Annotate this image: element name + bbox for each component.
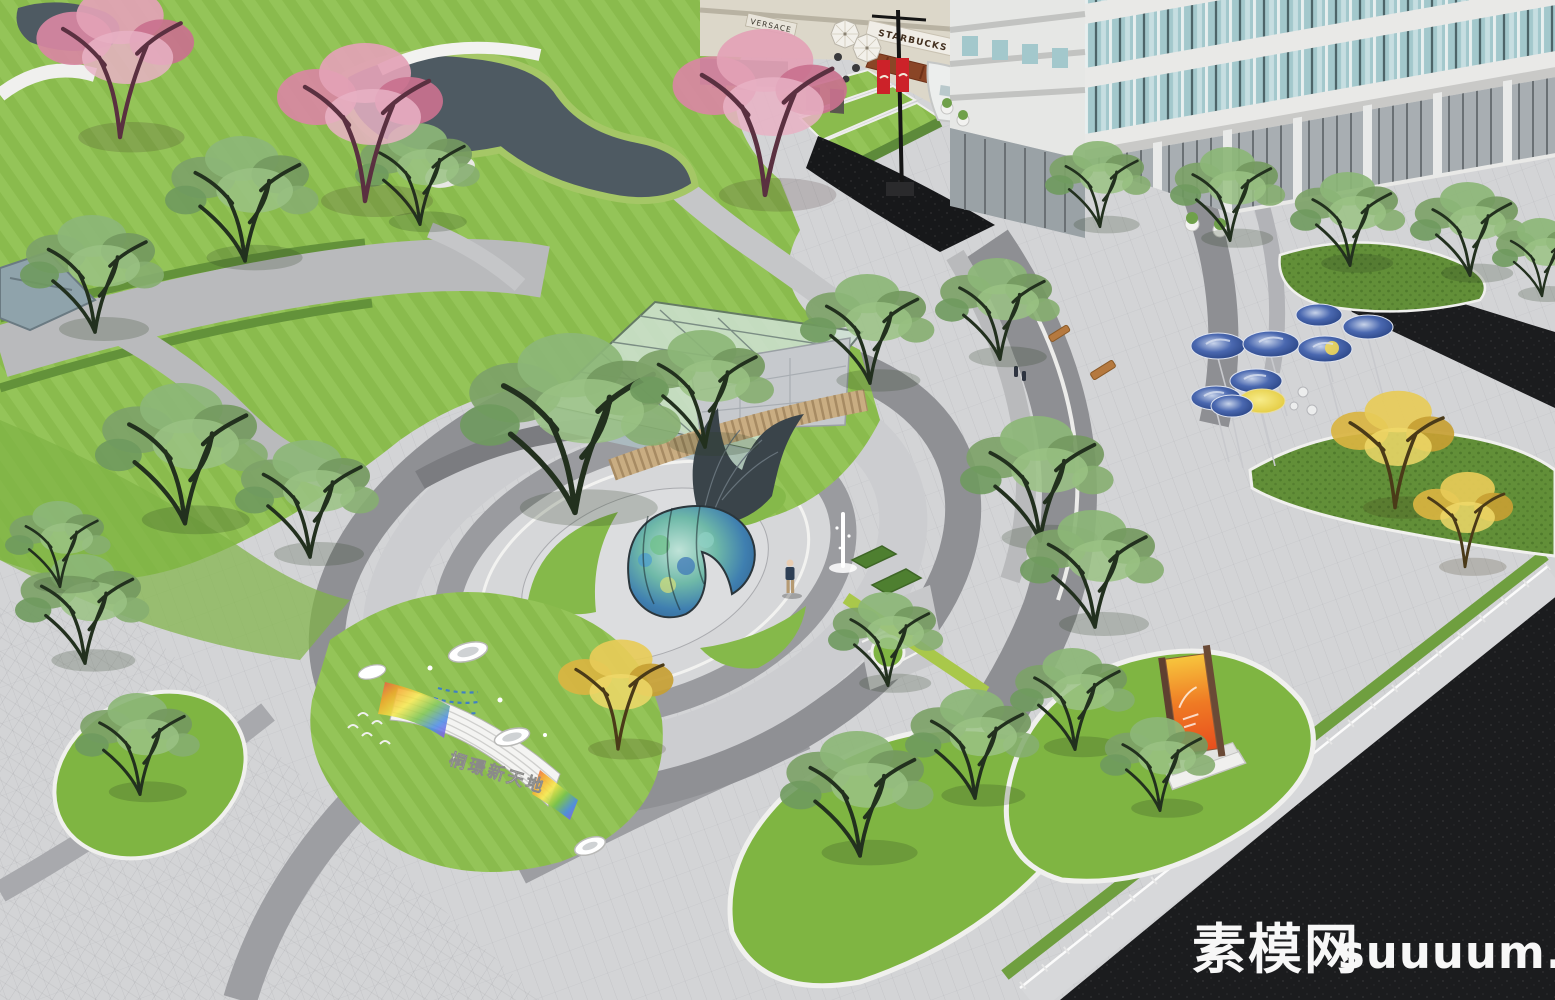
spray-dot [839, 547, 842, 550]
mosaic-patch [660, 577, 676, 593]
cafe-table [852, 64, 860, 72]
spray-dot [847, 534, 850, 537]
person-torso [786, 567, 795, 580]
lawn-light [498, 698, 503, 703]
pilaster [1433, 92, 1442, 178]
starry-disc [1191, 333, 1245, 359]
spray-dot [835, 526, 838, 529]
window [992, 40, 1008, 60]
person-leg [791, 580, 794, 593]
person-leg [787, 580, 790, 593]
pilaster [1503, 80, 1512, 166]
landscape-render: VERSACE STARBUCKS [0, 0, 1555, 1000]
planter-shrub [1186, 212, 1198, 224]
person-head [787, 560, 794, 567]
planter-shrub [942, 98, 952, 108]
starry-disc [1211, 395, 1253, 417]
lawn-light [543, 733, 547, 737]
mosaic-patch [698, 532, 714, 548]
window [1052, 48, 1068, 68]
office-building-side-face [950, 0, 1085, 238]
pilaster [1293, 117, 1302, 203]
window [962, 36, 978, 56]
window [1022, 44, 1038, 64]
watermark-domain: suuuum.com [1338, 926, 1555, 979]
starry-disc [1298, 336, 1352, 362]
person-silhouette [1014, 366, 1018, 377]
starry-disc [1243, 331, 1299, 357]
lamp-base-planter [886, 182, 914, 196]
lawn-light [428, 666, 433, 671]
person-silhouette [1022, 371, 1026, 381]
watermark: 素模网 suuuum.com [1192, 918, 1555, 981]
starry-disc [1296, 304, 1342, 326]
stool [1307, 405, 1317, 415]
mosaic-patch [677, 557, 695, 575]
stool [1298, 387, 1308, 397]
watermark-site-name: 素模网 [1192, 918, 1360, 981]
mosaic-patch [638, 553, 652, 567]
person-shadow [782, 593, 802, 599]
cafe-table [834, 53, 842, 61]
umbrella [853, 34, 881, 62]
planter-shrub [958, 110, 968, 120]
starry-disc [1343, 315, 1393, 339]
stool [1290, 402, 1298, 410]
